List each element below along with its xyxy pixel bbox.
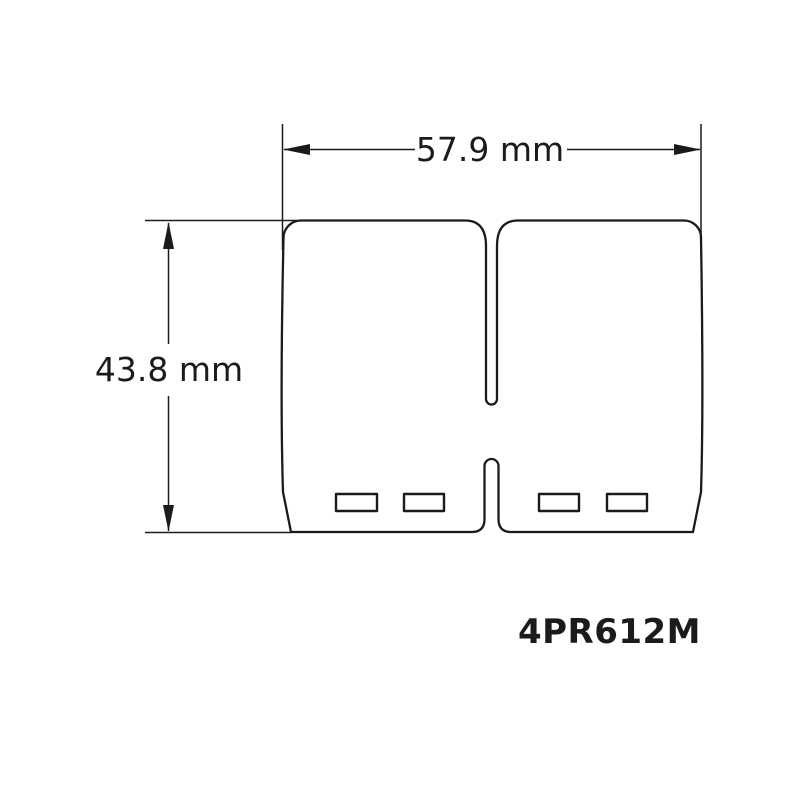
width-dimension-label: 57.9 mm <box>416 130 564 169</box>
width-arrowhead-left-icon <box>283 144 310 155</box>
petal-window-cutout-3 <box>539 494 579 511</box>
petal-linework-group <box>282 221 703 533</box>
reed-petal-technical-drawing: 57.9 mm 43.8 mm 4PR612M <box>0 0 800 800</box>
reed-petal-outline <box>282 221 703 533</box>
height-arrowhead-down-icon <box>163 505 174 532</box>
part-number-label: 4PR612M <box>518 612 701 652</box>
petal-window-cutout-4 <box>607 494 647 511</box>
height-dimension-label: 43.8 mm <box>95 350 243 389</box>
technical-drawing-page: 57.9 mm 43.8 mm 4PR612M <box>0 0 800 800</box>
width-arrowhead-right-icon <box>674 144 701 155</box>
height-arrowhead-up-icon <box>163 222 174 249</box>
petal-window-cutout-1 <box>336 494 377 511</box>
petal-window-cutout-2 <box>404 494 444 511</box>
